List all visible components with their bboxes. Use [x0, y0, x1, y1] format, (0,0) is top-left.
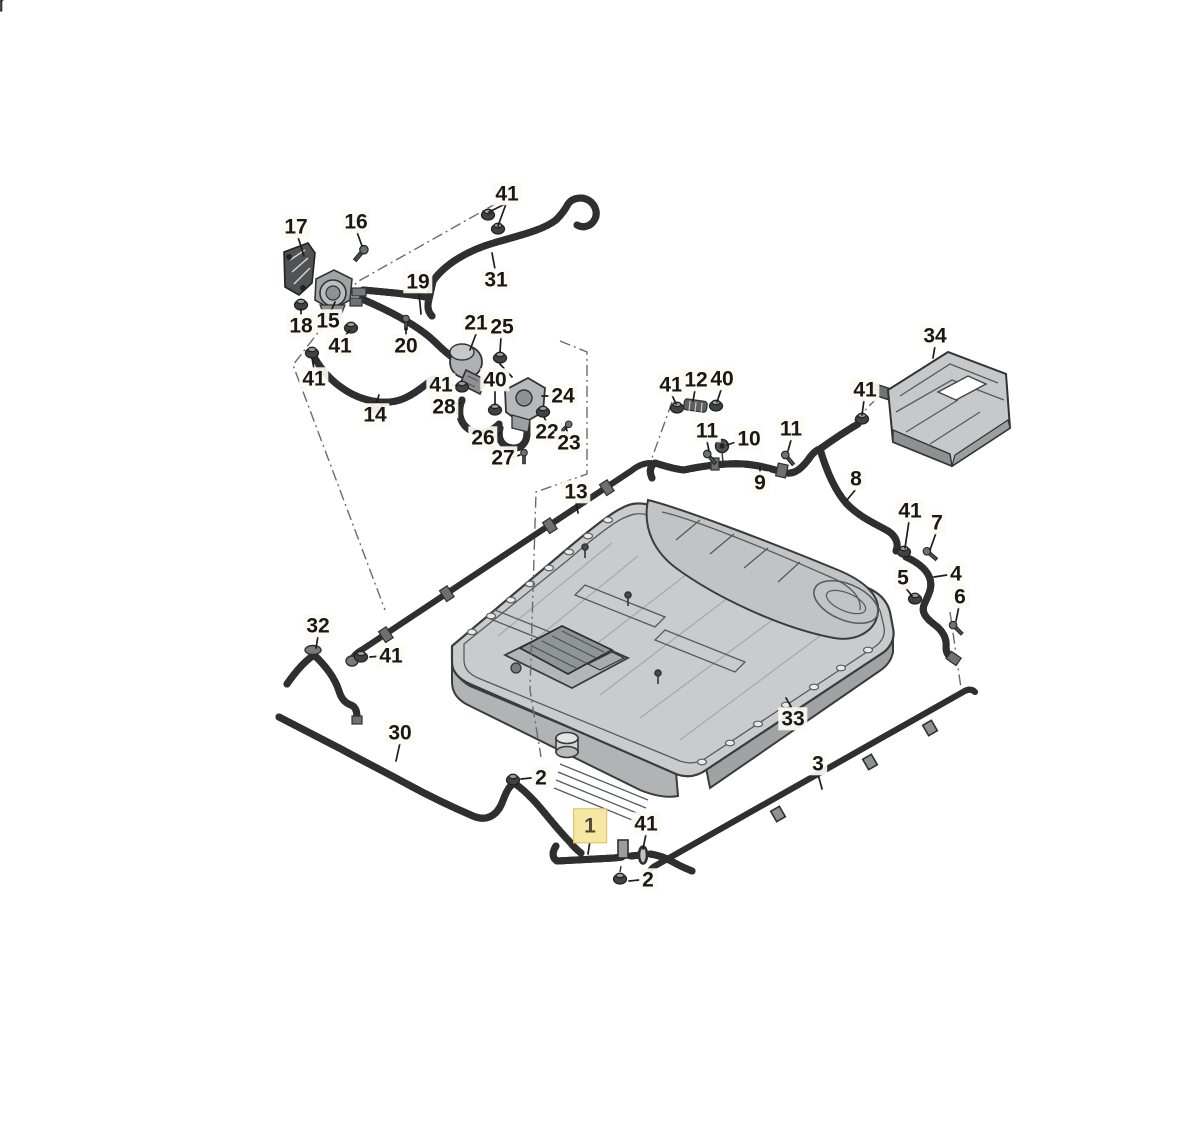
callout-18[interactable]: 18: [286, 314, 315, 337]
callout-17[interactable]: 17: [281, 215, 310, 238]
callout-41[interactable]: 41: [376, 644, 405, 667]
callout-12[interactable]: 12: [681, 368, 710, 391]
callout-25[interactable]: 25: [487, 315, 516, 338]
callout-5[interactable]: 5: [894, 566, 912, 589]
callout-31[interactable]: 31: [481, 268, 510, 291]
callout-41[interactable]: 41: [299, 367, 328, 390]
callout-4[interactable]: 4: [947, 562, 965, 585]
callout-41[interactable]: 41: [850, 378, 879, 401]
callout-2[interactable]: 2: [532, 766, 550, 789]
callout-41[interactable]: 41: [426, 373, 455, 396]
part-34-module: [871, 352, 1010, 466]
callout-9[interactable]: 9: [751, 471, 769, 494]
callout-41[interactable]: 41: [631, 812, 660, 835]
callout-10[interactable]: 10: [734, 427, 763, 450]
callout-40[interactable]: 40: [480, 368, 509, 391]
callout-32[interactable]: 32: [303, 614, 332, 637]
callout-28[interactable]: 28: [429, 395, 458, 418]
callout-6[interactable]: 6: [951, 585, 969, 608]
callout-15[interactable]: 15: [313, 309, 342, 332]
callout-11[interactable]: 11: [693, 419, 721, 442]
callout-41[interactable]: 41: [492, 182, 521, 205]
callout-8[interactable]: 8: [847, 467, 865, 490]
callout-34[interactable]: 34: [920, 324, 949, 347]
callout-23[interactable]: 23: [554, 431, 583, 454]
callout-11[interactable]: 11: [777, 417, 805, 440]
part-17-bracket: [284, 243, 315, 295]
part-31-hose: [363, 198, 596, 316]
callout-13[interactable]: 13: [561, 480, 590, 503]
callout-21[interactable]: 21: [461, 311, 490, 334]
part-14-hose: [313, 355, 433, 402]
callout-2[interactable]: 2: [639, 868, 657, 891]
callout-41[interactable]: 41: [895, 499, 924, 522]
parts-diagram: 17 16 41 31 19 18 15 41 20 41 14 21 25 4…: [0, 0, 1200, 1146]
coolant-port: [556, 733, 578, 758]
callout-41[interactable]: 41: [325, 334, 354, 357]
callout-3[interactable]: 3: [809, 752, 827, 775]
callout-33[interactable]: 33: [778, 707, 807, 730]
callout-19[interactable]: 19: [403, 270, 432, 293]
callout-16[interactable]: 16: [341, 210, 370, 233]
callout-1-highlighted[interactable]: 1: [573, 808, 607, 843]
callout-40[interactable]: 40: [707, 367, 736, 390]
callout-14[interactable]: 14: [360, 403, 389, 426]
part-12-connector: [683, 399, 707, 413]
callout-24[interactable]: 24: [548, 384, 577, 407]
callout-27[interactable]: 27: [488, 446, 517, 469]
diagram-artwork: [0, 0, 1200, 1146]
callout-7[interactable]: 7: [928, 511, 946, 534]
callout-30[interactable]: 30: [385, 721, 414, 744]
part-8-hose: [846, 503, 897, 551]
callout-20[interactable]: 20: [391, 334, 420, 357]
